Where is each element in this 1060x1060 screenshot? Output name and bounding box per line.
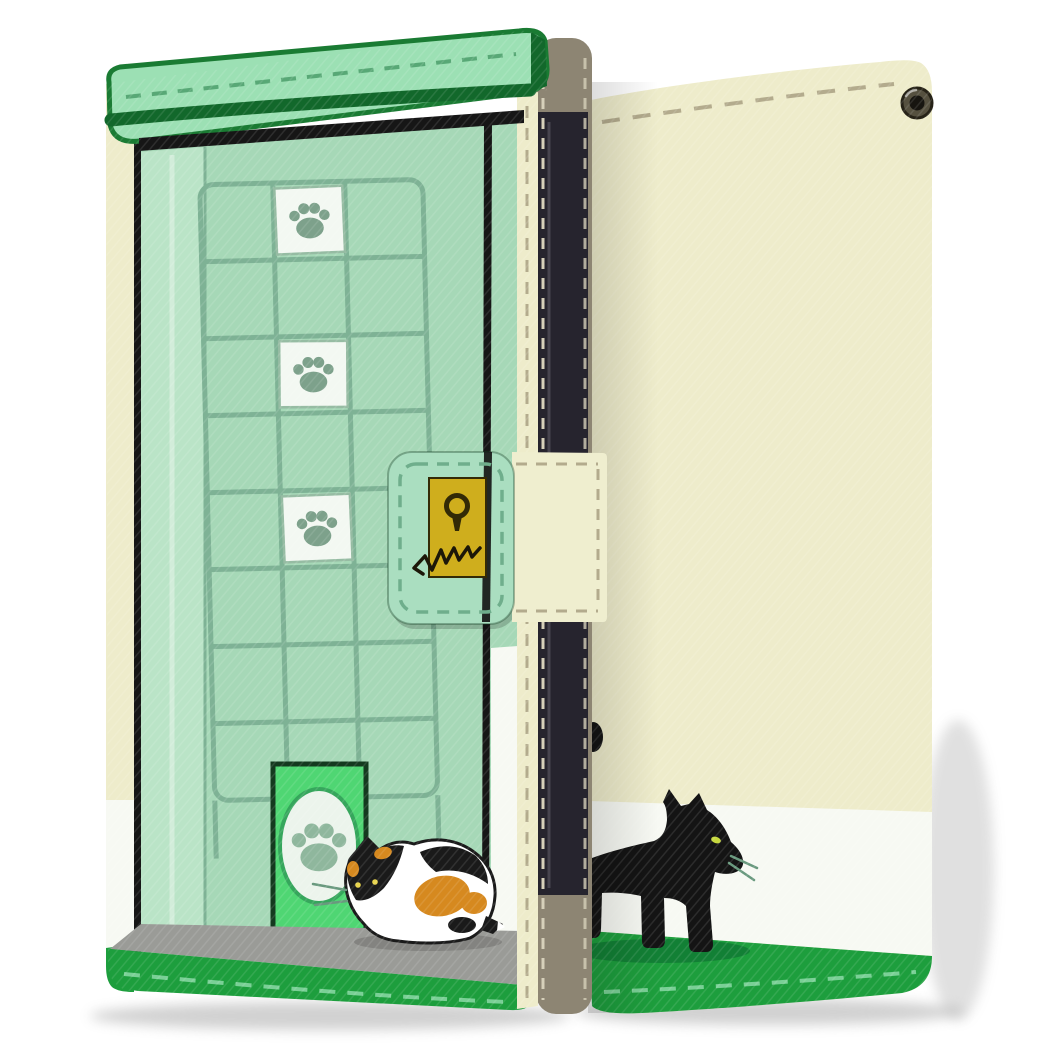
strap-back-section [512,452,607,622]
product-image [0,0,1060,1060]
back-cover [574,60,932,1013]
clasp-strap [388,452,607,629]
phone-case-illustration [0,0,1060,1060]
